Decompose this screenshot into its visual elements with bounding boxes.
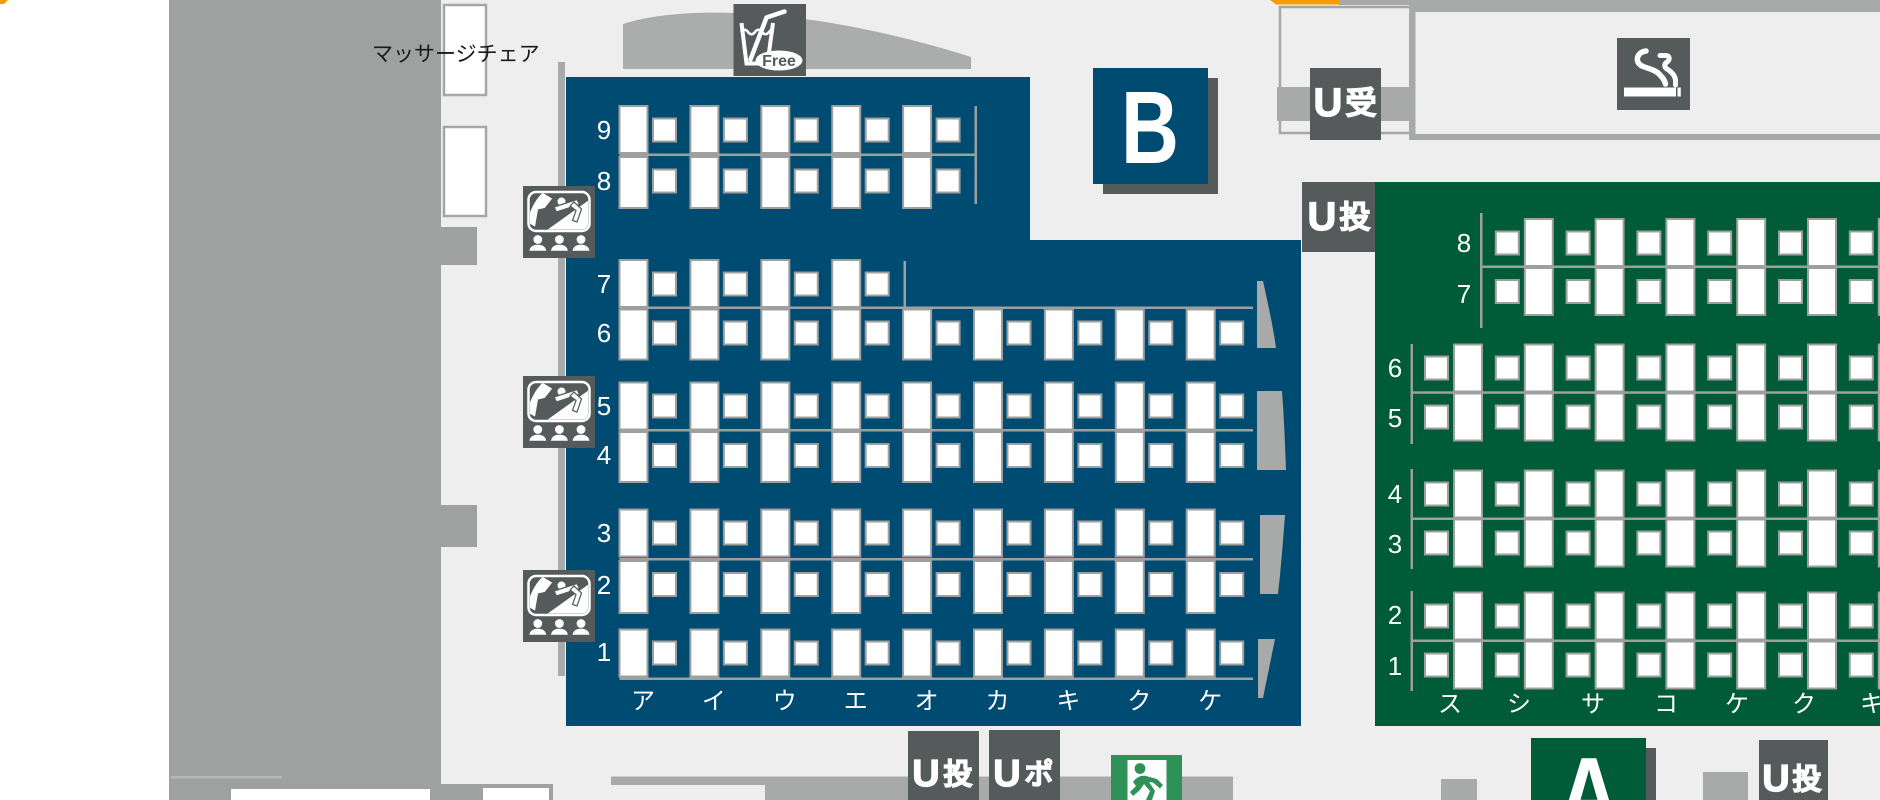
svg-text:A: A xyxy=(1558,737,1620,800)
svg-text:シ: シ xyxy=(1507,691,1531,718)
svg-text:4: 4 xyxy=(597,440,611,470)
svg-text:U: U xyxy=(912,753,939,795)
svg-text:U: U xyxy=(993,753,1020,795)
svg-text:ア: ア xyxy=(631,688,655,715)
svg-text:キ: キ xyxy=(1860,691,1880,718)
svg-text:U: U xyxy=(1762,758,1789,800)
svg-text:7: 7 xyxy=(1457,279,1471,309)
svg-text:エ: エ xyxy=(844,688,868,715)
svg-text:投: 投 xyxy=(943,758,972,791)
svg-text:U: U xyxy=(1314,81,1343,125)
svg-text:4: 4 xyxy=(1388,479,1402,509)
svg-text:5: 5 xyxy=(597,391,611,421)
svg-text:オ: オ xyxy=(915,688,939,715)
svg-text:B: B xyxy=(1121,69,1179,185)
svg-text:2: 2 xyxy=(597,570,611,600)
svg-text:U: U xyxy=(1308,195,1337,239)
svg-text:3: 3 xyxy=(1388,529,1402,559)
svg-text:2: 2 xyxy=(1388,600,1402,630)
svg-text:投: 投 xyxy=(1792,763,1821,796)
svg-text:9: 9 xyxy=(597,115,611,145)
svg-text:ポ: ポ xyxy=(1024,758,1053,791)
svg-text:8: 8 xyxy=(597,166,611,196)
svg-text:ク: ク xyxy=(1127,688,1151,715)
svg-text:5: 5 xyxy=(1388,403,1402,433)
svg-text:6: 6 xyxy=(597,318,611,348)
svg-text:キ: キ xyxy=(1056,688,1080,715)
svg-text:8: 8 xyxy=(1457,228,1471,258)
svg-text:1: 1 xyxy=(597,637,611,667)
svg-text:受: 受 xyxy=(1346,86,1377,121)
svg-text:イ: イ xyxy=(702,688,726,715)
svg-text:ス: ス xyxy=(1438,691,1462,718)
svg-text:投: 投 xyxy=(1340,200,1371,235)
svg-text:ケ: ケ xyxy=(1725,691,1749,718)
svg-text:ク: ク xyxy=(1792,691,1816,718)
svg-text:1: 1 xyxy=(1388,651,1402,681)
svg-text:コ: コ xyxy=(1654,691,1678,718)
svg-text:3: 3 xyxy=(597,518,611,548)
svg-text:ケ: ケ xyxy=(1198,688,1222,715)
svg-text:マッサージチェア: マッサージチェア xyxy=(372,43,540,66)
svg-text:7: 7 xyxy=(597,269,611,299)
svg-text:Free: Free xyxy=(762,53,796,70)
svg-text:ウ: ウ xyxy=(773,688,797,715)
svg-text:カ: カ xyxy=(986,688,1010,715)
svg-text:6: 6 xyxy=(1388,353,1402,383)
svg-text:サ: サ xyxy=(1581,691,1605,718)
